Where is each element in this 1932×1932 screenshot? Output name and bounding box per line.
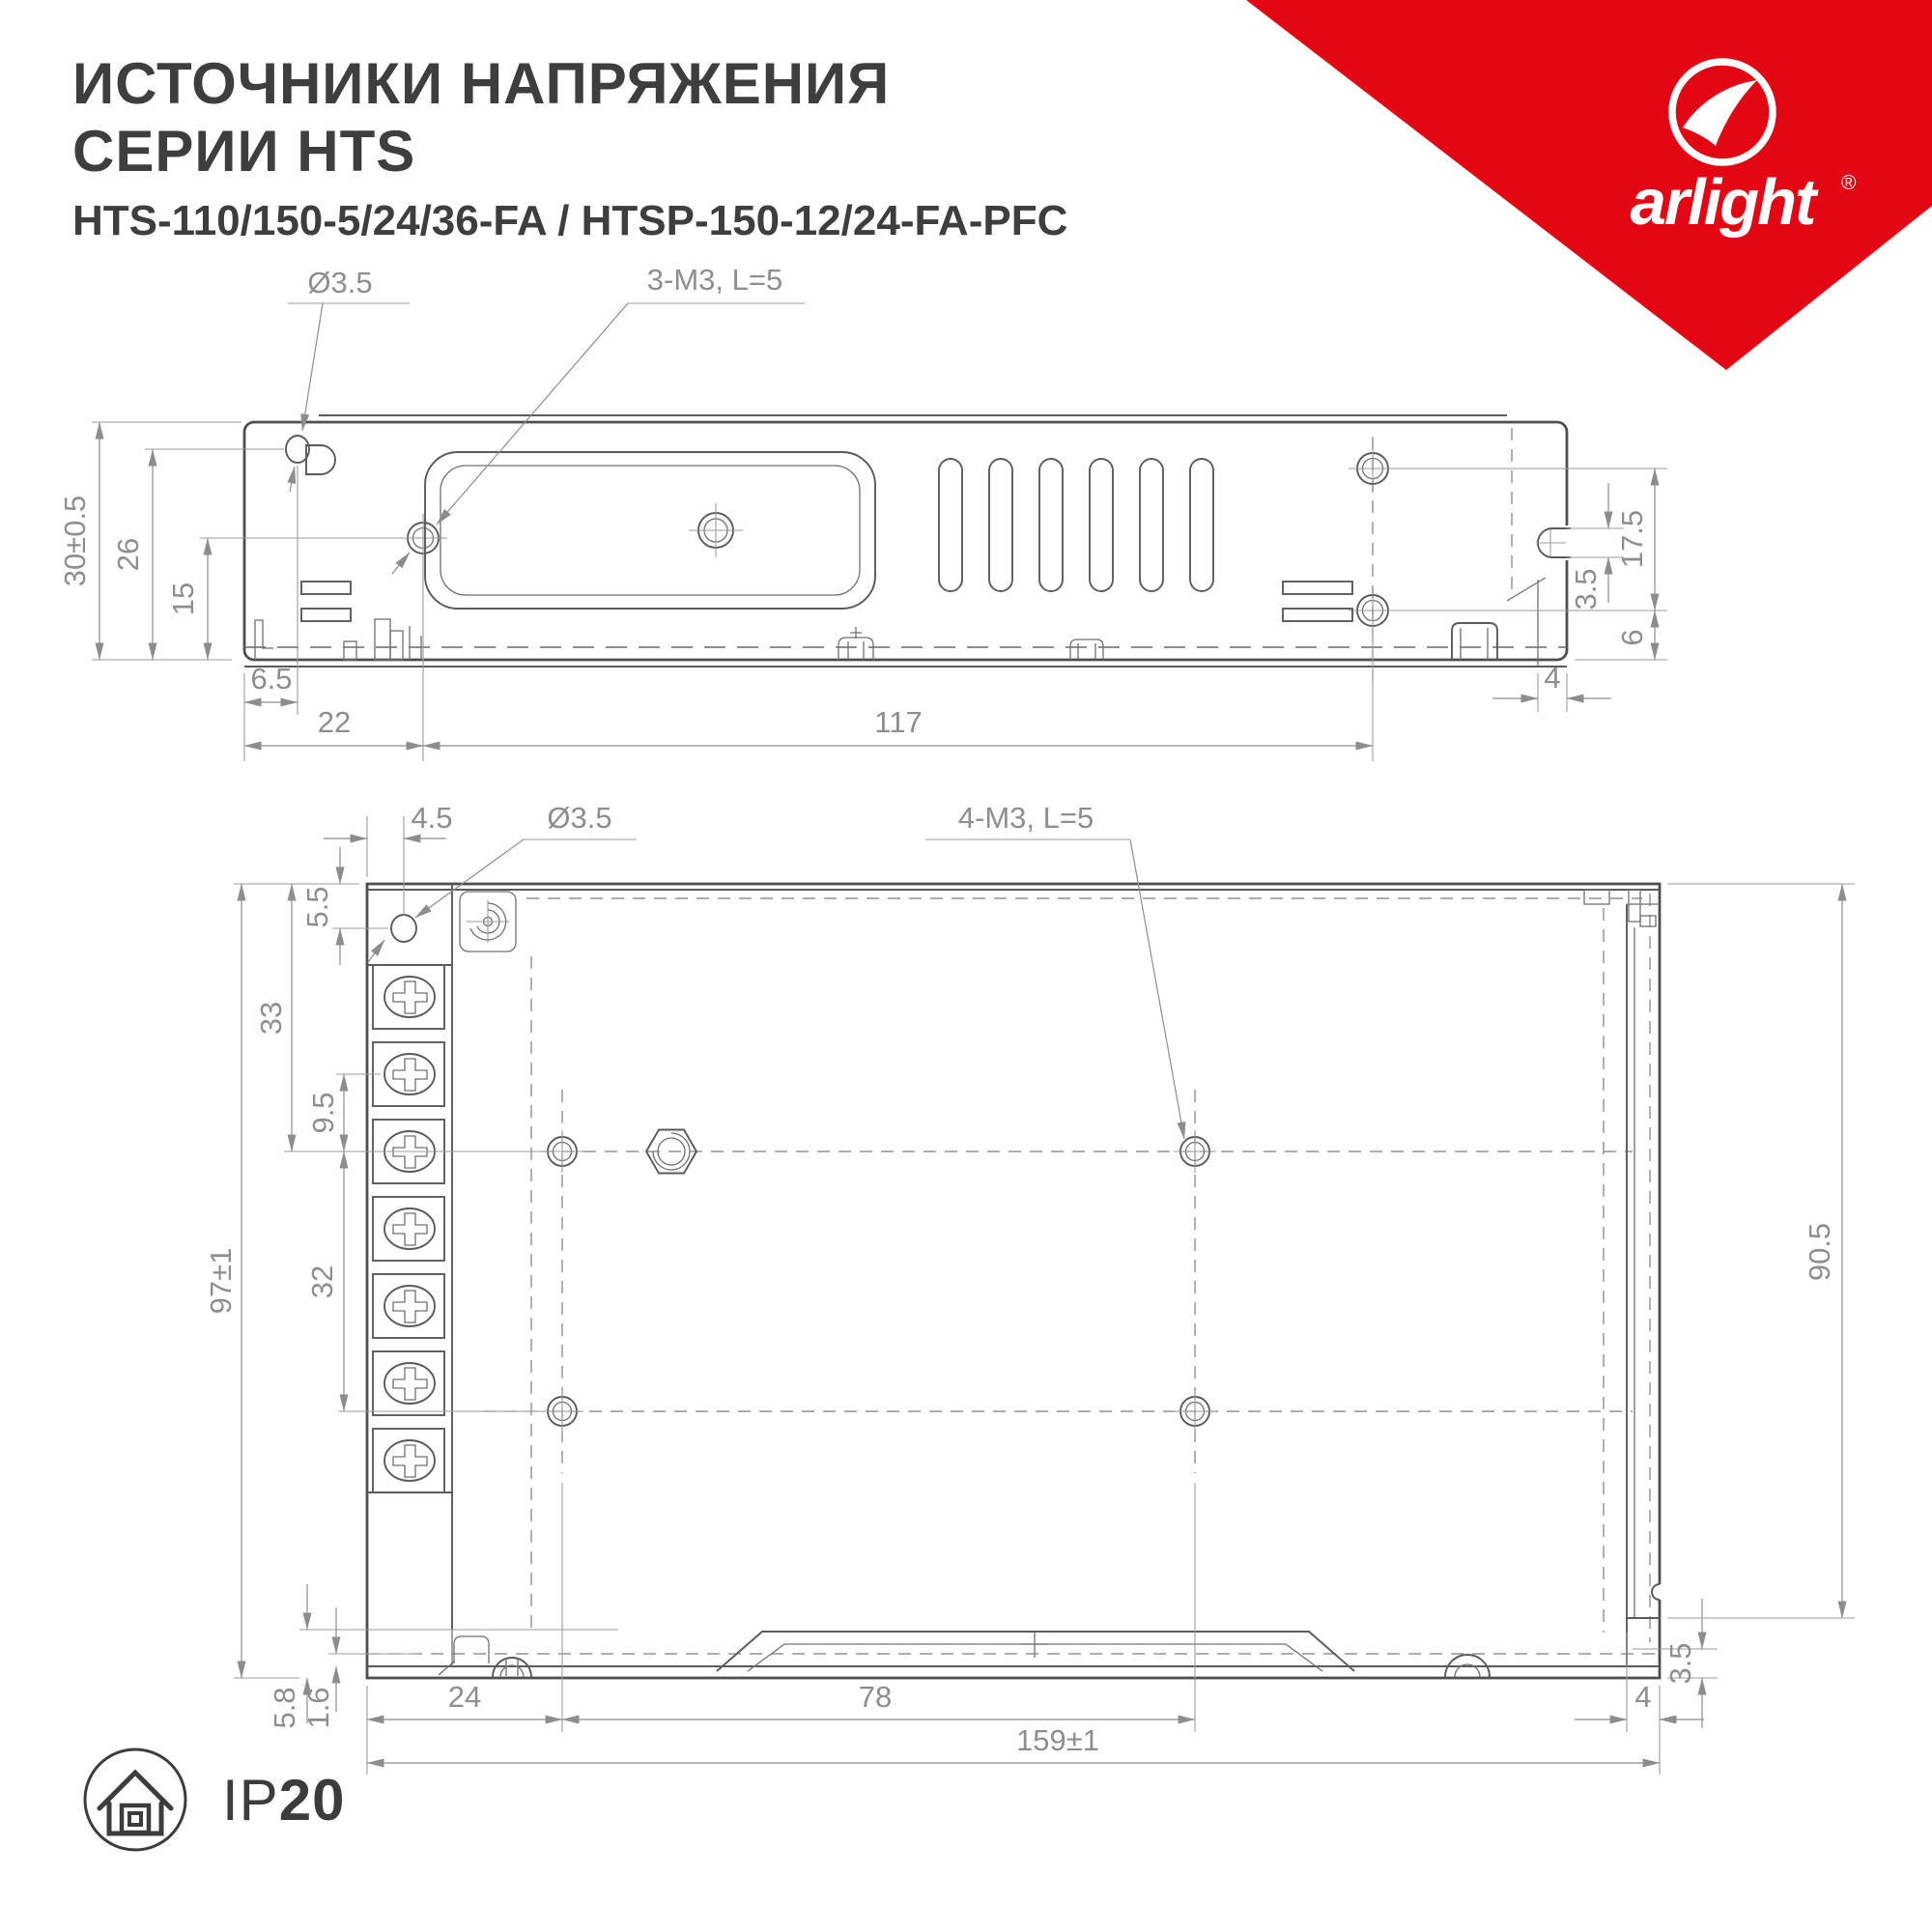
dim-label: 78 — [859, 1680, 892, 1714]
dim-label: 4 — [1544, 661, 1560, 695]
dim-label: 6 — [1615, 629, 1649, 645]
mounting-hole — [391, 915, 416, 942]
dim-label: 1.6 — [301, 1687, 335, 1728]
ip20-badge: IP20 — [81, 1746, 345, 1854]
technical-drawing: arlight ® — [0, 0, 1932, 1932]
d-cutout — [306, 445, 335, 474]
terminal-screw — [373, 1042, 444, 1106]
connector-wall — [1584, 890, 1667, 1666]
dim-label: 30±0.5 — [58, 496, 92, 587]
m3-hole — [1174, 1390, 1216, 1433]
dim-label: 9.5 — [306, 1092, 340, 1133]
red-ribbon: arlight ® — [1246, 0, 1932, 370]
vent-slots — [939, 459, 1213, 591]
dim-label: 4 — [1634, 1680, 1651, 1714]
dim-label: 32 — [305, 1265, 339, 1298]
dim-label: 5.5 — [300, 886, 334, 927]
dim-label: 3.5 — [1569, 568, 1603, 610]
datasheet-page: ИСТОЧНИКИ НАПРЯЖЕНИЯ СЕРИИ HTS HTS-110/1… — [0, 0, 1932, 1932]
dim-label: 22 — [318, 705, 351, 739]
callout-hole-dia: Ø3.5 — [547, 801, 611, 835]
callout-thread: 3-M3, L=5 — [647, 263, 782, 297]
house-in-circle-icon — [81, 1746, 189, 1854]
dim-label: 24 — [448, 1680, 481, 1714]
callout-thread: 4-M3, L=5 — [958, 801, 1094, 835]
dim-label: 90.5 — [1803, 1223, 1836, 1281]
terminal-screw — [373, 1197, 444, 1261]
registered-mark: ® — [1841, 172, 1857, 194]
brand-wordmark: arlight — [1631, 166, 1819, 239]
dim-label: 17.5 — [1615, 510, 1649, 568]
dim-label: 159±1 — [1016, 1723, 1099, 1757]
dim-label: 5.8 — [268, 1687, 301, 1728]
terminal-screw — [373, 1274, 444, 1338]
dim-label: 117 — [874, 705, 922, 739]
m3-hole — [1174, 1130, 1216, 1173]
dim-label: 26 — [111, 538, 145, 571]
spiral-symbol-icon — [460, 892, 516, 952]
dim-label: 6.5 — [250, 662, 292, 696]
dim-label: 15 — [166, 582, 200, 615]
ip-prefix: IP — [222, 1768, 279, 1833]
ip-value: 20 — [279, 1768, 346, 1833]
side-view-drawing: 30±0.5 26 15 6.5 22 117 17.5 6 3.5 — [58, 263, 1667, 761]
callout-hole-dia: Ø3.5 — [307, 266, 372, 299]
terminal-screw — [373, 1351, 444, 1415]
ip-rating-text: IP20 — [222, 1767, 345, 1833]
dim-label: 3.5 — [1663, 1642, 1697, 1684]
terminal-screw — [373, 965, 444, 1029]
terminal-strip — [367, 884, 452, 1666]
dim-label: 97±1 — [204, 1248, 238, 1315]
dim-label: 33 — [254, 1002, 288, 1035]
louver — [717, 1632, 1354, 1671]
dim-label: 4.5 — [411, 801, 452, 835]
house-icon — [99, 1773, 171, 1833]
terminal-screw — [373, 1429, 444, 1492]
plan-view-drawing: 4.5 Ø3.5 4-M3, L=5 97±1 33 9.5 5.5 — [204, 801, 1855, 1775]
